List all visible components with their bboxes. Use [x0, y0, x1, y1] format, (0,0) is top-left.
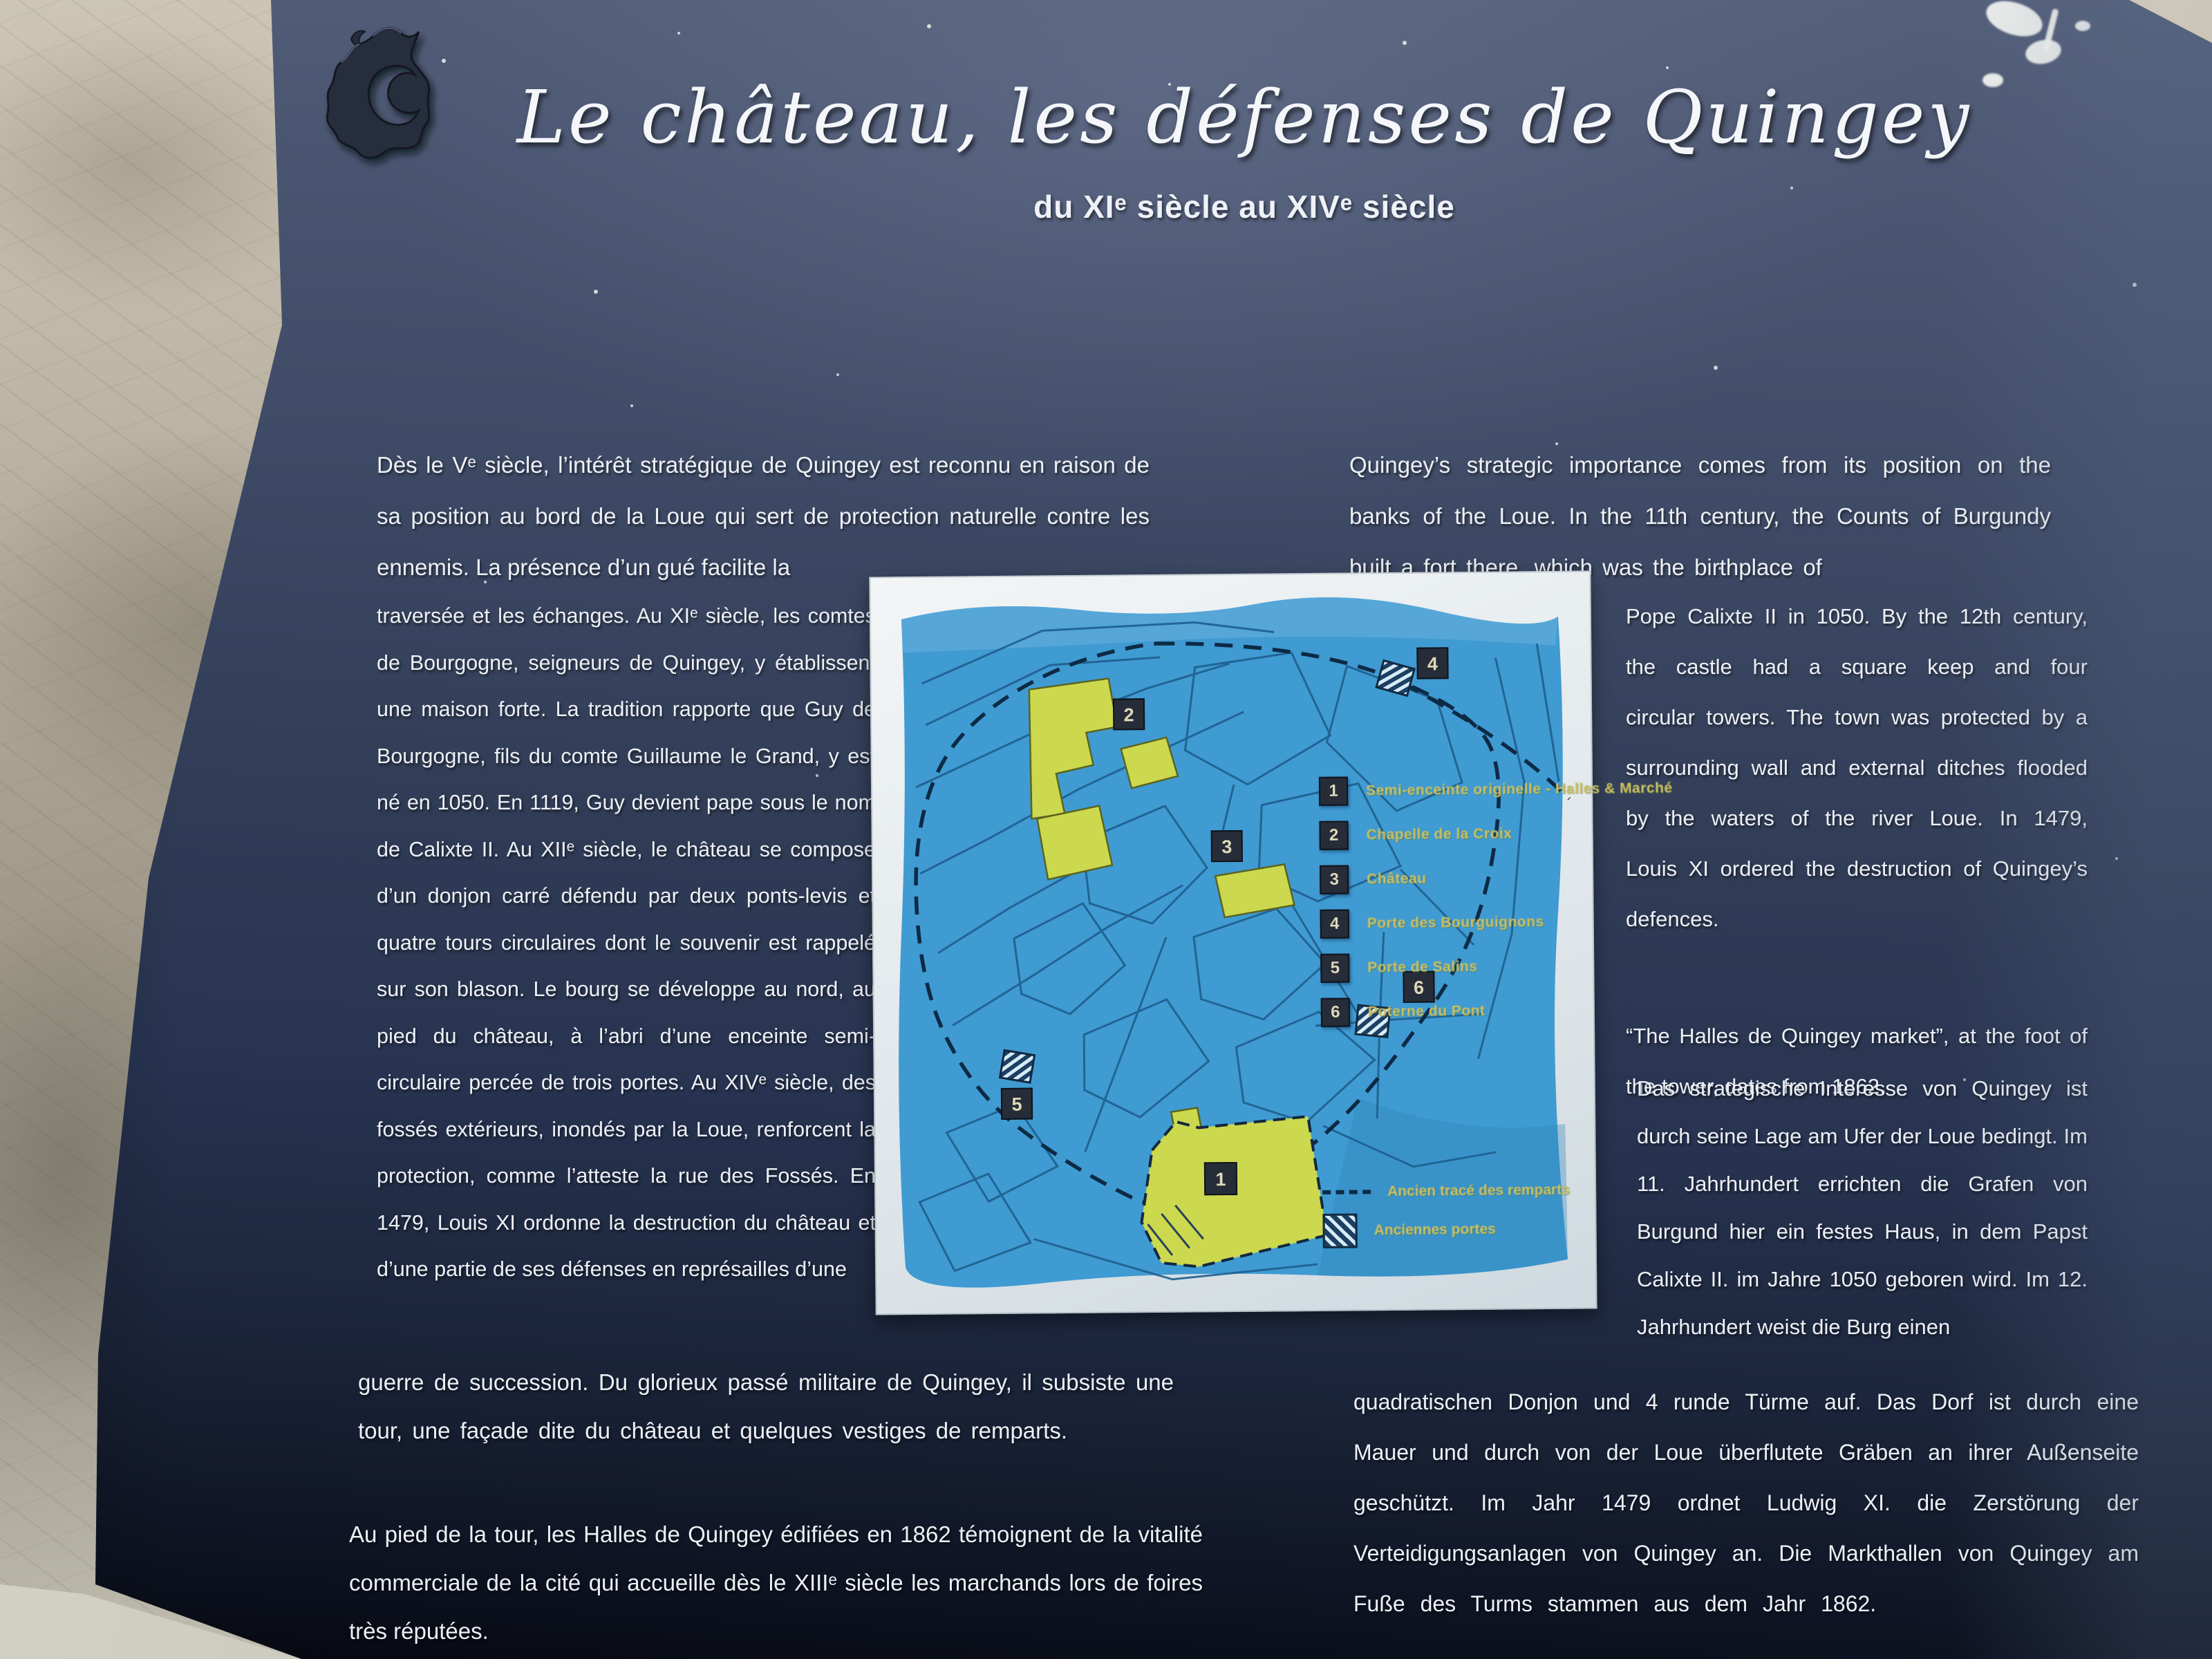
legend-item: 1 Semi-enceinte originelle - Halles & Ma… [1319, 766, 1673, 813]
english-text-p2: Pope Calixte II in 1050. By the 12th cen… [1626, 591, 2088, 944]
legend-gates-row: Anciennes portes [1322, 1210, 1570, 1250]
dashed-line-icon [1322, 1190, 1371, 1194]
franche-comte-emblem-icon [310, 24, 462, 182]
map-legend: 1 Semi-enceinte originelle - Halles & Ma… [1319, 766, 1675, 1034]
svg-text:4: 4 [1427, 653, 1438, 674]
map-symbol-legend: Ancien tracé des remparts Anciennes port… [1322, 1171, 1571, 1250]
legend-label: Poterne du Pont [1368, 1003, 1485, 1020]
map-marker-5: 5 [1002, 1089, 1032, 1119]
street-lines [915, 619, 1563, 1282]
legend-rampart-row: Ancien tracé des remparts [1322, 1171, 1570, 1212]
french-text-p3: guerre de succession. Du glorieux passé … [358, 1358, 1174, 1455]
legend-number: 4 [1320, 910, 1349, 939]
french-text-p1: Dès le Vᵉ siècle, l’intérêt stratégique … [377, 440, 1150, 593]
legend-number: 6 [1321, 998, 1350, 1027]
gate-symbols [996, 660, 1418, 1082]
svg-text:5: 5 [1011, 1094, 1022, 1115]
legend-item: 6 Poterne du Pont [1321, 987, 1675, 1034]
english-text-p1: Quingey’s strategic importance comes fro… [1349, 440, 2051, 593]
german-text-p1: Das strategische Interesse von Quingey i… [1637, 1065, 2088, 1351]
legend-number: 5 [1320, 954, 1349, 983]
paint-splatter [2023, 37, 2063, 67]
german-text-p2: quadratischen Donjon und 4 runde Türme a… [1353, 1377, 2139, 1629]
legend-gates-label: Anciennes portes [1374, 1221, 1496, 1239]
paint-splatter [2042, 8, 2059, 53]
english-text-p3: “The Halles de Quingey market”, at the f… [1626, 1011, 2088, 1112]
legend-number: 2 [1319, 821, 1348, 850]
map-marker-6: 6 [1403, 971, 1434, 1002]
legend-number: 3 [1320, 865, 1349, 894]
legend-label: Château [1367, 871, 1427, 888]
legend-number: 1 [1319, 777, 1348, 806]
page-subtitle: du XIᵉ siècle au XIVᵉ siècle [359, 188, 2129, 225]
legend-label: Semi-enceinte originelle - Halles & Marc… [1366, 780, 1673, 799]
legend-item: 2 Chapelle de la Croix [1319, 810, 1673, 857]
legend-label: Porte des Bourguignons [1367, 914, 1544, 932]
map-marker-4: 4 [1417, 648, 1447, 678]
town-map: 1 2 3 4 5 6 1 Semi-enceinte originelle -… [869, 570, 1597, 1315]
rampart-trace [914, 640, 1573, 1209]
building-shapes [1029, 677, 1297, 1135]
castle-hatch-marks [1147, 1205, 1203, 1255]
legend-item: 5 Porte de Salins [1320, 943, 1674, 990]
map-marker-1: 1 [1205, 1163, 1237, 1194]
map-marker-3: 3 [1212, 831, 1242, 861]
french-text-p2: traversée et les échanges. Au XIᵉ siècle… [377, 593, 876, 1293]
legend-item: 4 Porte des Bourguignons [1320, 899, 1674, 946]
legend-label: Chapelle de la Croix [1367, 825, 1512, 843]
svg-text:2: 2 [1123, 704, 1134, 725]
castle-site-shape [1141, 1116, 1327, 1267]
map-markers: 1 2 3 4 5 6 [997, 648, 1452, 1197]
svg-text:3: 3 [1221, 836, 1232, 857]
paint-splatter [1983, 73, 2003, 87]
hatched-square-icon [1322, 1213, 1357, 1248]
svg-text:6: 6 [1414, 977, 1424, 998]
paint-splatter [2075, 21, 2090, 31]
paint-splatter [1982, 0, 2047, 43]
legend-label: Porte de Salins [1367, 959, 1477, 976]
map-marker-2: 2 [1114, 699, 1144, 729]
french-text-p4: Au pied de la tour, les Halles de Quinge… [349, 1510, 1203, 1656]
town-map-drawing: 1 2 3 4 5 6 [869, 570, 1597, 1315]
info-panel: Le château, les défenses de Quingey du X… [0, 0, 2212, 1659]
legend-item: 3 Château [1320, 854, 1674, 901]
map-water-area [894, 595, 1568, 1288]
legend-rampart-label: Ancien tracé des remparts [1387, 1182, 1570, 1200]
svg-text:1: 1 [1215, 1169, 1226, 1190]
page-title: Le château, les défenses de Quingey [359, 75, 2129, 160]
